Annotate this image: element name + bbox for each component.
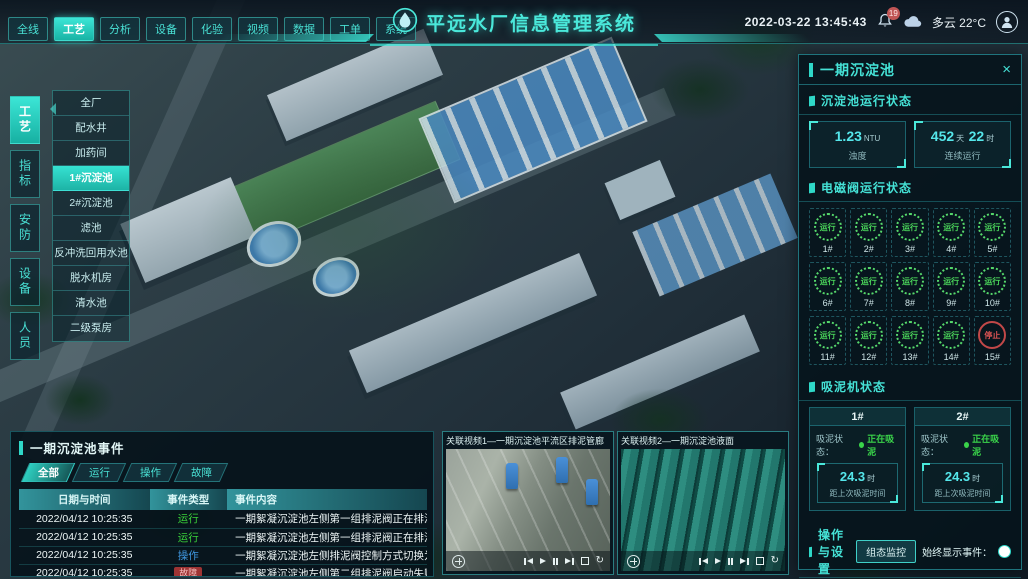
valve-id: 1# bbox=[810, 244, 845, 254]
app-root: 全线 工艺 分析 设备 化验 视频 数据 工单 系统 平远水厂信息管理系统 20… bbox=[0, 0, 1028, 579]
video-feed-2[interactable]: ↻ bbox=[621, 449, 785, 571]
mud-pump-card-1: 1# 吸泥状态： 正在吸泥 24.3时 距上次吸泥时间 bbox=[809, 407, 906, 511]
event-time: 2022/04/12 10:25:35 bbox=[19, 528, 150, 546]
detail-panel: 一期沉淀池 × 沉淀池运行状态 1.23NTU 浊度 452天 22时 连续运行… bbox=[798, 54, 1022, 570]
process-submenu: 全厂 配水井 加药间 1#沉淀池 2#沉淀池 滤池 反冲洗回用水池 脱水机房 清… bbox=[52, 90, 130, 342]
uptime-days-unit: 天 bbox=[956, 134, 964, 143]
valve-dial-icon: 停止 bbox=[978, 321, 1006, 349]
mud-pump-id: 1# bbox=[810, 408, 905, 426]
valve-gauge: 运行13# bbox=[891, 316, 928, 365]
top-tab-fenxi[interactable]: 分析 bbox=[100, 17, 140, 41]
mud-pump-card-2: 2# 吸泥状态： 正在吸泥 24.3时 距上次吸泥时间 bbox=[914, 407, 1011, 511]
video-controls: ↻ bbox=[446, 551, 610, 571]
event-type: 故障 bbox=[150, 564, 228, 577]
event-type: 运行 bbox=[150, 510, 228, 528]
datetime-text: 2022-03-22 13:45:43 bbox=[745, 15, 867, 29]
menu-item-jiayaojian[interactable]: 加药间 bbox=[53, 141, 129, 166]
ptz-dpad-icon[interactable] bbox=[452, 555, 465, 568]
events-panel: 一期沉淀池事件 全部 运行 操作 故障 日期与时间 事件类型 事件内容 2022… bbox=[10, 431, 434, 577]
detail-panel-header: 一期沉淀池 × bbox=[799, 55, 1021, 85]
mud-pump-unit: 时 bbox=[972, 474, 980, 483]
page-title: 平远水厂信息管理系统 bbox=[426, 9, 636, 36]
valve-gauge: 运行11# bbox=[809, 316, 846, 365]
events-panel-header: 一期沉淀池事件 bbox=[11, 432, 433, 462]
left-tab-bar: 工艺 指标 安防 设备 人员 bbox=[10, 96, 40, 366]
side-tab-shebei[interactable]: 设备 bbox=[10, 258, 40, 306]
mud-pump-value-label: 距上次吸泥时间 bbox=[818, 488, 897, 499]
valve-id: 5# bbox=[975, 244, 1010, 254]
valve-dial-icon: 运行 bbox=[896, 321, 924, 349]
valve-status-grid: 运行1# 运行2# 运行3# 运行4# 运行5# 运行6# 运行7# 运行8# … bbox=[799, 208, 1021, 371]
mud-pump-status: 正在吸泥 bbox=[972, 432, 1004, 458]
top-tab-gongyi[interactable]: 工艺 bbox=[54, 17, 94, 41]
valve-dial-icon: 运行 bbox=[896, 213, 924, 241]
events-tab-bar: 全部 运行 操作 故障 bbox=[11, 462, 433, 482]
uptime-card: 452天 22时 连续运行 bbox=[914, 121, 1011, 168]
section-heading: 操作与设置 bbox=[818, 526, 850, 577]
column-header-time: 日期与时间 bbox=[19, 489, 150, 510]
section-bullet-icon bbox=[809, 182, 815, 193]
menu-item-lvchi[interactable]: 滤池 bbox=[53, 216, 129, 241]
valve-id: 6# bbox=[810, 298, 845, 308]
run-status-stats: 1.23NTU 浊度 452天 22时 连续运行 bbox=[799, 121, 1021, 172]
events-tab-label: 全部 bbox=[38, 465, 59, 480]
valve-dial-icon: 运行 bbox=[978, 213, 1006, 241]
events-tab-operate[interactable]: 操作 bbox=[123, 463, 177, 482]
event-content: 一期絮凝沉淀池左侧排泥阀控制方式切换为手动 bbox=[227, 546, 427, 564]
valve-id: 12# bbox=[851, 352, 886, 362]
valve-gauge: 运行5# bbox=[974, 208, 1011, 257]
skip-back-icon[interactable] bbox=[699, 558, 708, 565]
event-type-run: 运行 bbox=[178, 532, 199, 544]
valve-gauge: 运行4# bbox=[933, 208, 970, 257]
video-pump-object bbox=[556, 457, 568, 483]
show-events-toggle-label: 始终显示事件： bbox=[922, 544, 992, 559]
accent-bar bbox=[809, 63, 813, 77]
turbidity-unit: NTU bbox=[864, 134, 880, 143]
column-header-type: 事件类型 bbox=[150, 489, 228, 510]
status-dot-icon bbox=[859, 442, 864, 448]
ptz-dpad-icon[interactable] bbox=[627, 555, 640, 568]
menu-item-2-chendianchi[interactable]: 2#沉淀池 bbox=[53, 191, 129, 216]
valve-id: 7# bbox=[851, 298, 886, 308]
valve-id: 11# bbox=[810, 352, 845, 362]
valve-gauge: 运行6# bbox=[809, 262, 846, 311]
mud-pump-value-box: 24.3时 距上次吸泥时间 bbox=[922, 463, 1003, 503]
valve-dial-icon: 运行 bbox=[814, 213, 842, 241]
valve-id: 4# bbox=[934, 244, 969, 254]
valve-dial-icon: 运行 bbox=[937, 321, 965, 349]
mud-pump-unit: 时 bbox=[867, 474, 875, 483]
menu-item-quanchang[interactable]: 全厂 bbox=[53, 91, 129, 116]
skip-forward-icon[interactable] bbox=[565, 558, 574, 565]
valve-id: 15# bbox=[975, 352, 1010, 362]
skip-back-icon[interactable] bbox=[524, 558, 533, 565]
valve-dial-icon: 运行 bbox=[855, 267, 883, 295]
pause-icon[interactable] bbox=[553, 558, 558, 565]
event-type-run: 运行 bbox=[178, 513, 199, 525]
video-panel-1: 关联视频1—一期沉淀池平流区排泥管廊 ↻ bbox=[442, 431, 614, 575]
weather-cloud-icon bbox=[903, 14, 922, 31]
events-tab-fault[interactable]: 故障 bbox=[174, 463, 228, 482]
top-tab-shebei[interactable]: 设备 bbox=[146, 17, 186, 41]
mud-pump-value-label: 距上次吸泥时间 bbox=[923, 488, 1002, 499]
section-heading: 吸泥机状态 bbox=[821, 378, 886, 395]
event-type: 运行 bbox=[150, 528, 228, 546]
valve-id: 10# bbox=[975, 298, 1010, 308]
mud-pump-status-label: 吸泥状态： bbox=[816, 432, 856, 458]
notification-bell-icon[interactable]: 19 bbox=[877, 13, 893, 32]
menu-item-qingshuichi[interactable]: 清水池 bbox=[53, 291, 129, 316]
side-tab-gongyi[interactable]: 工艺 bbox=[10, 96, 40, 144]
events-table: 日期与时间 事件类型 事件内容 2022/04/12 10:25:35 运行 一… bbox=[19, 489, 427, 577]
menu-item-tuoshuijifang[interactable]: 脱水机房 bbox=[53, 266, 129, 291]
table-row[interactable]: 2022/04/12 10:25:35 操作 一期絮凝沉淀池左侧排泥阀控制方式切… bbox=[19, 546, 427, 564]
video-title: 关联视频2—一期沉淀池液面 bbox=[621, 434, 785, 449]
mud-pump-status-label: 吸泥状态： bbox=[921, 432, 961, 458]
weather-text: 多云 22°C bbox=[932, 14, 986, 31]
turbidity-card: 1.23NTU 浊度 bbox=[809, 121, 906, 168]
valve-dial-icon: 运行 bbox=[937, 213, 965, 241]
uptime-label: 连续运行 bbox=[917, 149, 1008, 162]
valve-dial-icon: 运行 bbox=[978, 267, 1006, 295]
events-tab-label: 故障 bbox=[191, 465, 212, 480]
show-events-toggle[interactable] bbox=[998, 545, 1011, 558]
valve-gauge: 运行14# bbox=[933, 316, 970, 365]
skip-forward-icon[interactable] bbox=[740, 558, 749, 565]
top-bar: 全线 工艺 分析 设备 化验 视频 数据 工单 系统 平远水厂信息管理系统 20… bbox=[0, 0, 1028, 44]
events-tab-run[interactable]: 运行 bbox=[72, 463, 126, 482]
loop-icon[interactable]: ↻ bbox=[596, 556, 604, 566]
valve-dial-icon: 运行 bbox=[855, 321, 883, 349]
video-pump-object bbox=[586, 479, 598, 505]
valve-dial-icon: 运行 bbox=[814, 321, 842, 349]
fullscreen-icon[interactable] bbox=[756, 557, 764, 565]
title-decoration-left bbox=[216, 34, 374, 42]
event-time: 2022/04/12 10:25:35 bbox=[19, 510, 150, 528]
pause-icon[interactable] bbox=[728, 558, 733, 565]
valve-id: 8# bbox=[892, 298, 927, 308]
section-mud-pumps-header: 吸泥机状态 bbox=[799, 371, 1021, 401]
valve-gauge: 运行10# bbox=[974, 262, 1011, 311]
events-tab-all[interactable]: 全部 bbox=[21, 463, 75, 482]
section-heading: 沉淀池运行状态 bbox=[821, 92, 912, 109]
section-bullet-icon bbox=[809, 381, 815, 392]
status-dot-icon bbox=[964, 442, 969, 448]
event-time: 2022/04/12 10:25:35 bbox=[19, 546, 150, 564]
mud-pump-cards: 1# 吸泥状态： 正在吸泥 24.3时 距上次吸泥时间 2# 吸泥状态： 正在吸… bbox=[799, 407, 1021, 517]
event-content: 一期絮凝沉淀池左侧第二组排泥阀启动失败 bbox=[227, 564, 427, 577]
play-icon[interactable] bbox=[540, 558, 546, 564]
valve-dial-icon: 运行 bbox=[896, 267, 924, 295]
events-tab-label: 运行 bbox=[89, 465, 110, 480]
section-valves-header: 电磁阀运行状态 bbox=[799, 172, 1021, 202]
menu-item-1-chendianchi[interactable]: 1#沉淀池 bbox=[53, 166, 129, 191]
mud-pump-value: 24.3 bbox=[945, 469, 970, 484]
valve-id: 13# bbox=[892, 352, 927, 362]
event-content: 一期絮凝沉淀池左侧第一组排泥阀正在排泥 bbox=[227, 510, 427, 528]
mud-pump-status-row: 吸泥状态： 正在吸泥 bbox=[915, 426, 1010, 463]
video-feed-1[interactable]: ↻ bbox=[446, 449, 610, 571]
uptime-hours-unit: 时 bbox=[986, 134, 994, 143]
app-title-plate: 平远水厂信息管理系统 bbox=[370, 7, 658, 46]
scada-monitor-button[interactable]: 组态监控 bbox=[856, 540, 916, 563]
valve-gauge: 运行1# bbox=[809, 208, 846, 257]
column-header-content: 事件内容 bbox=[227, 489, 427, 510]
events-tab-label: 操作 bbox=[140, 465, 161, 480]
table-row[interactable]: 2022/04/12 10:25:35 运行 一期絮凝沉淀池左侧第一组排泥阀正在… bbox=[19, 510, 427, 528]
event-time: 2022/04/12 10:25:35 bbox=[19, 564, 150, 577]
play-icon[interactable] bbox=[715, 558, 721, 564]
side-tab-zhibiao[interactable]: 指标 bbox=[10, 150, 40, 198]
user-avatar[interactable] bbox=[996, 11, 1018, 33]
event-type: 操作 bbox=[150, 546, 228, 564]
toggle-knob bbox=[999, 546, 1010, 557]
side-tab-renyuan[interactable]: 人员 bbox=[10, 312, 40, 360]
water-drop-logo-icon bbox=[392, 7, 418, 38]
valve-id: 3# bbox=[892, 244, 927, 254]
playback-controls: ↻ bbox=[699, 556, 779, 566]
table-row[interactable]: 2022/04/12 10:25:35 故障 一期絮凝沉淀池左侧第二组排泥阀启动… bbox=[19, 564, 427, 577]
valve-id: 9# bbox=[934, 298, 969, 308]
close-icon[interactable]: × bbox=[1002, 62, 1011, 77]
event-content: 一期絮凝沉淀池左侧第一组排泥阀正在排泥 bbox=[227, 528, 427, 546]
notification-badge: 19 bbox=[887, 7, 900, 20]
uptime-days: 452 bbox=[931, 128, 954, 144]
valve-gauge: 运行3# bbox=[891, 208, 928, 257]
turbidity-label: 浊度 bbox=[812, 149, 903, 162]
mud-pump-value: 24.3 bbox=[840, 469, 865, 484]
menu-item-peishuijing[interactable]: 配水井 bbox=[53, 116, 129, 141]
valve-dial-icon: 运行 bbox=[855, 213, 883, 241]
events-panel-title: 一期沉淀池事件 bbox=[30, 438, 125, 457]
valve-id: 2# bbox=[851, 244, 886, 254]
valve-gauge: 运行2# bbox=[850, 208, 887, 257]
mud-pump-status: 正在吸泥 bbox=[867, 432, 899, 458]
uptime-hours: 22 bbox=[969, 128, 985, 144]
menu-item-erjibengfang[interactable]: 二级泵房 bbox=[53, 316, 129, 341]
valve-id: 14# bbox=[934, 352, 969, 362]
title-decoration-right bbox=[654, 34, 812, 42]
video-pump-object bbox=[506, 463, 518, 489]
loop-icon[interactable]: ↻ bbox=[771, 556, 779, 566]
section-heading: 电磁阀运行状态 bbox=[821, 179, 912, 196]
events-table-header-row: 日期与时间 事件类型 事件内容 bbox=[19, 489, 427, 510]
valve-dial-icon: 运行 bbox=[814, 267, 842, 295]
valve-gauge: 运行8# bbox=[891, 262, 928, 311]
fullscreen-icon[interactable] bbox=[581, 557, 589, 565]
side-tab-anfang[interactable]: 安防 bbox=[10, 204, 40, 252]
valve-gauge-stopped: 停止15# bbox=[974, 316, 1011, 365]
turbidity-value: 1.23 bbox=[835, 128, 862, 144]
valve-gauge: 运行12# bbox=[850, 316, 887, 365]
mud-pump-value-box: 24.3时 距上次吸泥时间 bbox=[817, 463, 898, 503]
top-bar-right: 2022-03-22 13:45:43 19 多云 22°C bbox=[745, 11, 1018, 33]
video-panel-2: 关联视频2—一期沉淀池液面 ↻ bbox=[617, 431, 789, 575]
detail-panel-title: 一期沉淀池 bbox=[820, 60, 995, 80]
table-row[interactable]: 2022/04/12 10:25:35 运行 一期絮凝沉淀池左侧第一组排泥阀正在… bbox=[19, 528, 427, 546]
video-controls: ↻ bbox=[621, 551, 785, 571]
valve-gauge: 运行9# bbox=[933, 262, 970, 311]
playback-controls: ↻ bbox=[524, 556, 604, 566]
section-run-status-header: 沉淀池运行状态 bbox=[799, 85, 1021, 115]
mud-pump-id: 2# bbox=[915, 408, 1010, 426]
section-bullet-icon bbox=[809, 546, 812, 556]
valve-gauge: 运行7# bbox=[850, 262, 887, 311]
section-bullet-icon bbox=[809, 95, 815, 106]
valve-dial-icon: 运行 bbox=[937, 267, 965, 295]
event-type-operate: 操作 bbox=[178, 550, 199, 562]
video-title: 关联视频1—一期沉淀池平流区排泥管廊 bbox=[446, 434, 610, 449]
event-type-fault-badge: 故障 bbox=[174, 567, 202, 578]
mud-pump-status-row: 吸泥状态： 正在吸泥 bbox=[810, 426, 905, 463]
accent-bar bbox=[19, 441, 23, 455]
top-tab-quanxian[interactable]: 全线 bbox=[8, 17, 48, 41]
menu-item-fanchongxi[interactable]: 反冲洗回用水池 bbox=[53, 241, 129, 266]
section-settings: 操作与设置 组态监控 始终显示事件： bbox=[799, 517, 1021, 578]
